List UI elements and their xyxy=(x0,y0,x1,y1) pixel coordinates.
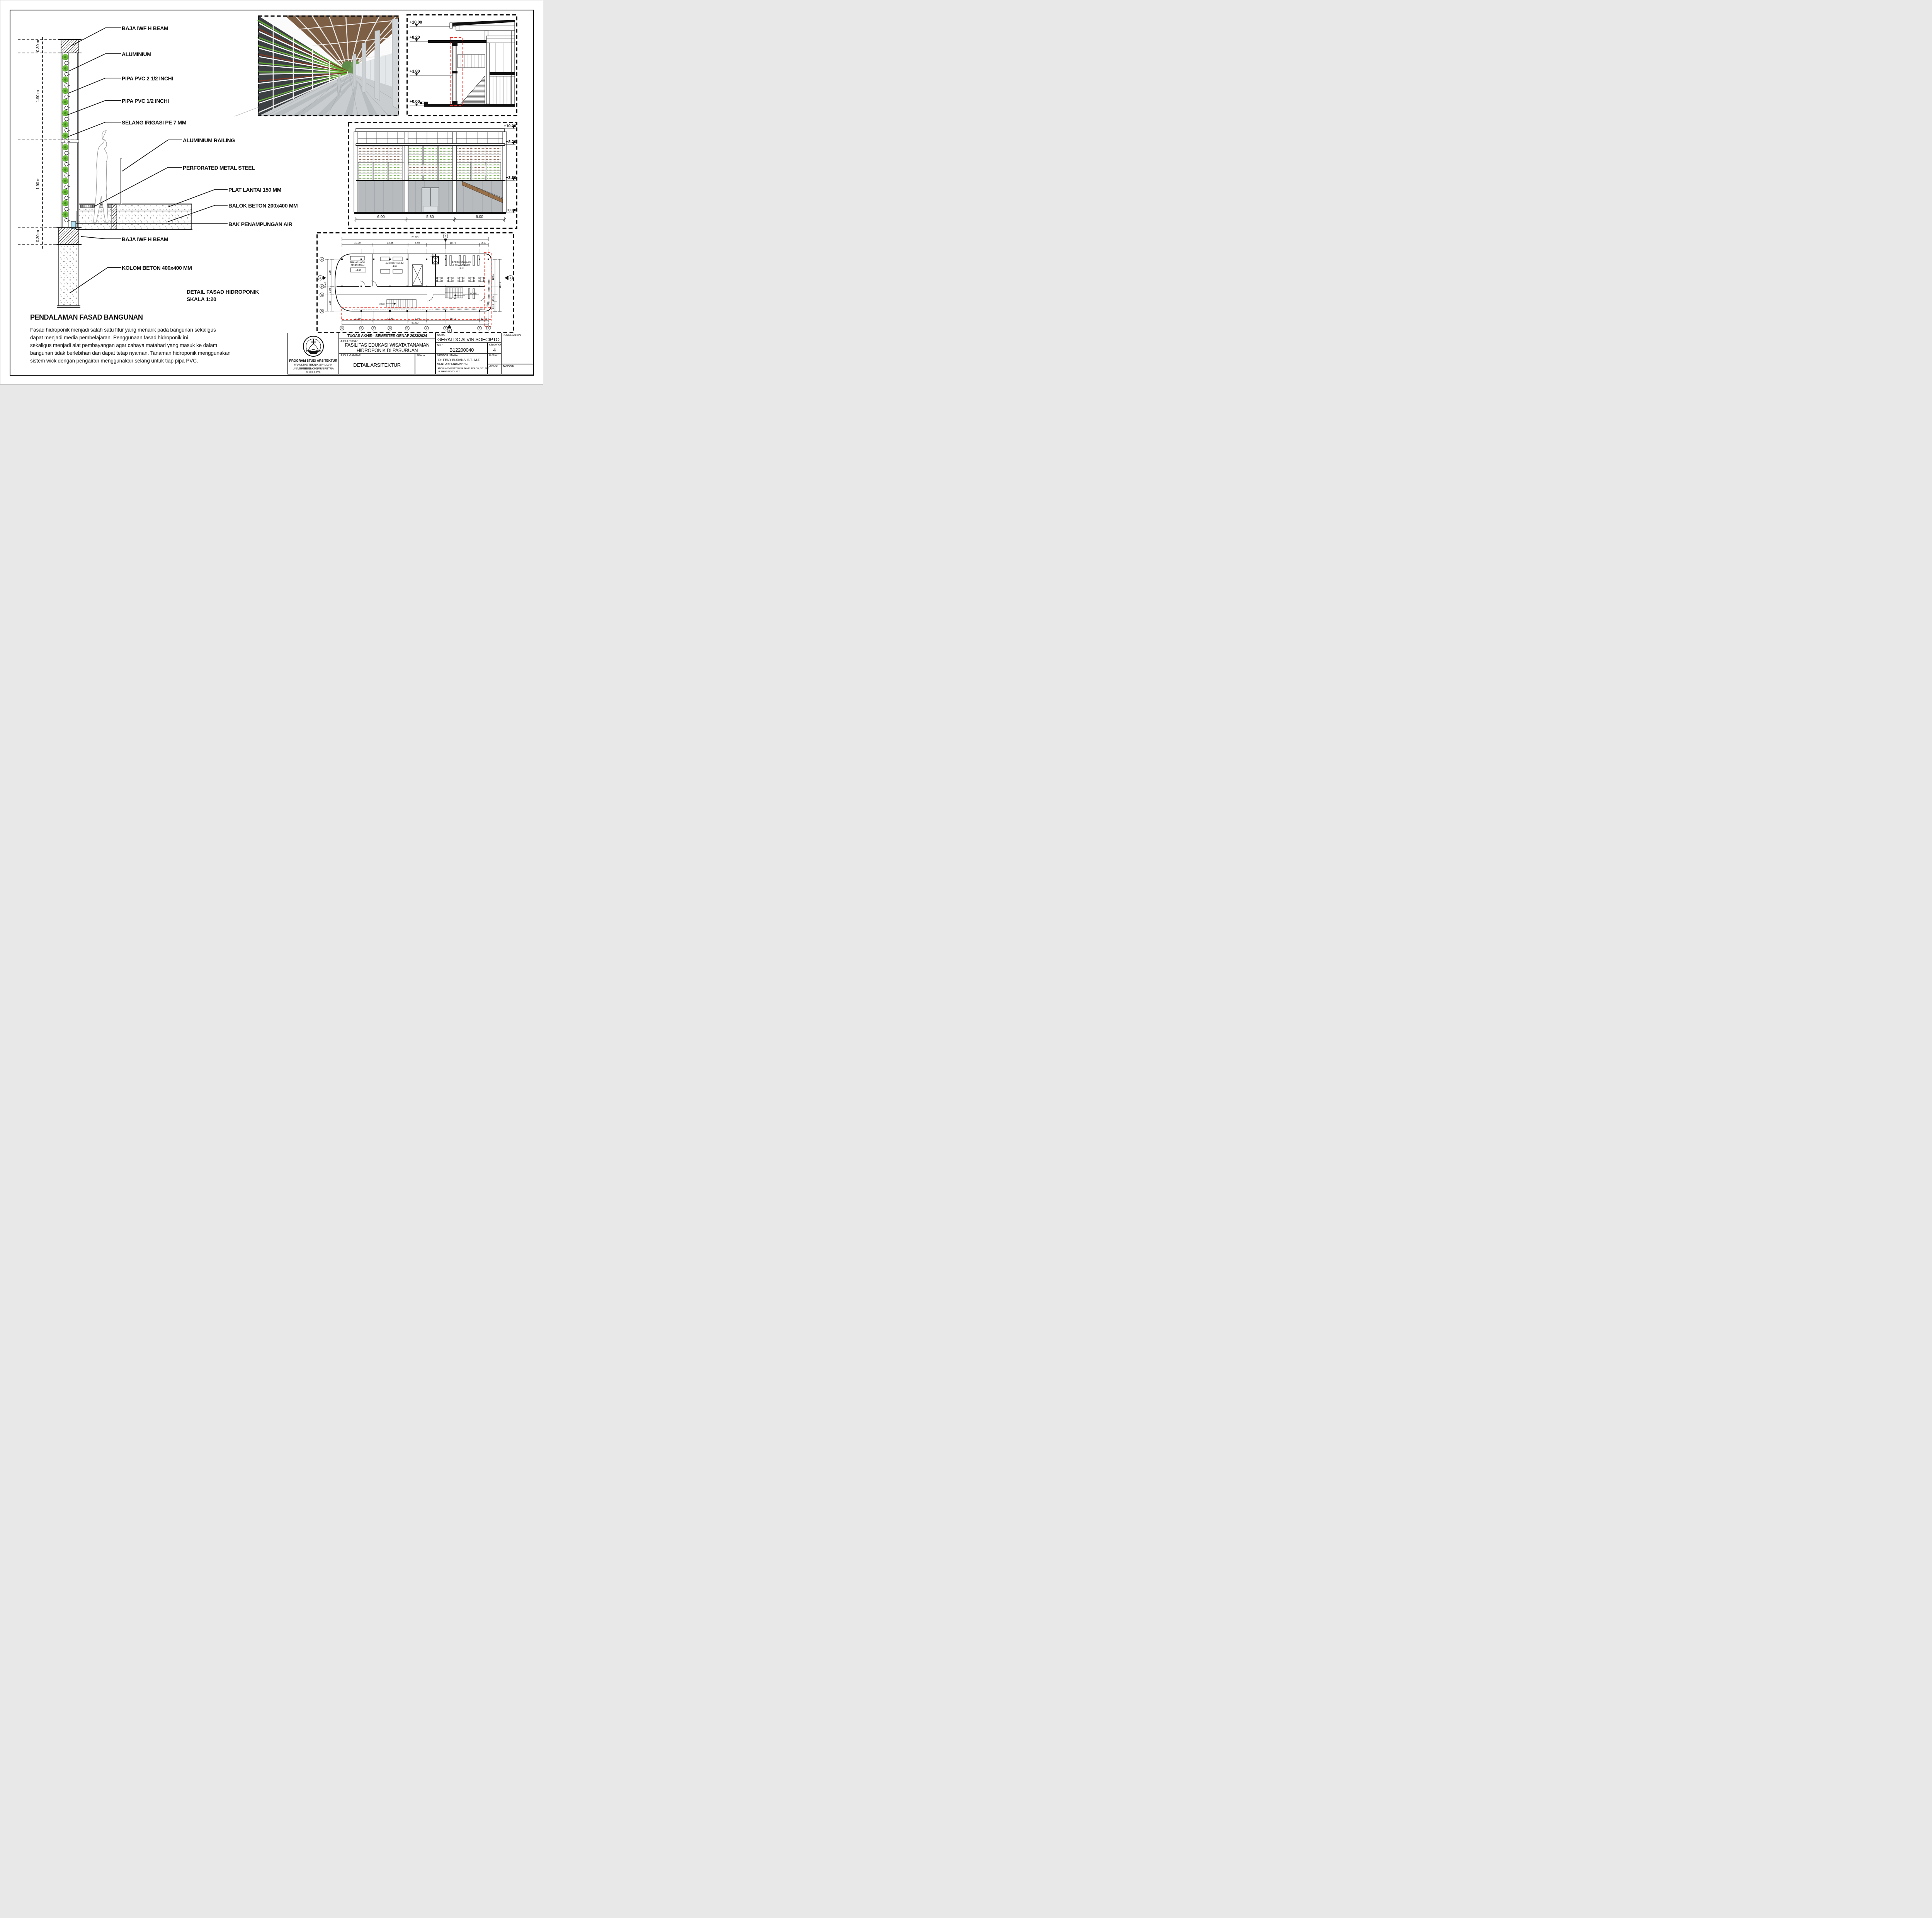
titleblock-mentor-cell: MENTOR UTAMA Dr. FENY ELSIANA, S.T., M.T… xyxy=(435,353,488,374)
page-heading: PENDALAMAN FASAD BANGUNAN xyxy=(30,313,143,322)
svg-text:2: 2 xyxy=(479,327,480,330)
svg-text:DOWN: DOWN xyxy=(379,303,386,306)
titleblock-nrp-cell: NRP B12200040 xyxy=(435,343,488,353)
titleblock-judul-tugas-cell: JUDUL TUGAS FASILITAS EDUKASI WISATA TAN… xyxy=(339,339,435,353)
sheet: BAJA IWF H BEAM ALUMINIUM PIPA PVC 2 1/2… xyxy=(0,0,543,385)
section-mark-a-right: A xyxy=(505,276,513,280)
svg-text:12.60: 12.60 xyxy=(492,274,495,280)
svg-text:B: B xyxy=(321,286,323,288)
detail-label: KOLOM BETON 400x400 MM xyxy=(122,265,192,271)
description-paragraph: Fasad hidroponik menjadi salah satu fitu… xyxy=(30,326,285,365)
detail-label: PLAT LANTAI 150 MM xyxy=(228,187,281,193)
grid-bubbles-rows: A B C D xyxy=(320,257,324,313)
svg-text:10.90: 10.90 xyxy=(354,242,361,245)
section-mark-a-left: A xyxy=(318,276,326,280)
svg-text:3.00: 3.00 xyxy=(329,288,332,293)
corridor-render xyxy=(258,15,399,116)
svg-text:LABORATORIUM: LABORATORIUM xyxy=(385,262,403,265)
svg-text:8: 8 xyxy=(361,327,362,330)
dim-label: 1.90 m xyxy=(36,90,40,102)
plan-stair-library xyxy=(445,288,465,298)
detail-label: BALOK BETON 200x400 MM xyxy=(228,203,298,209)
titleblock-judul-gambar-cell: JUDUL GAMBAR DETAIL ARSITEKTUR xyxy=(339,353,415,374)
detail-label: PIPA PVC 1/2 INCHI xyxy=(122,98,169,104)
titleblock-jumlah-cell: JUMLAH xyxy=(488,364,501,374)
svg-text:+8.20: +8.20 xyxy=(506,140,516,144)
titleblock-kelompok-cell: KELOMPOK 4 xyxy=(488,343,501,353)
svg-text:9: 9 xyxy=(341,327,343,330)
section-mark-b-top: B xyxy=(443,234,448,249)
detail-label: ALUMINIUM RAILING xyxy=(183,137,235,143)
svg-text:10.90: 10.90 xyxy=(354,318,361,320)
section-mark-b-bottom: B xyxy=(447,325,452,333)
titleblock-skala-cell: SKALA xyxy=(415,353,435,374)
svg-text:12.35: 12.35 xyxy=(387,242,394,245)
svg-text:B: B xyxy=(445,235,447,238)
section-drawing: +10.00 +8.20 +3.80 +0.00 xyxy=(406,14,517,116)
detail-title: DETAIL FASAD HIDROPONIKSKALA 1:20 xyxy=(187,288,259,303)
svg-text:6.00: 6.00 xyxy=(476,215,483,219)
svg-text:+10.00: +10.00 xyxy=(410,20,422,25)
svg-text:+4.65: +4.65 xyxy=(391,265,397,268)
leader-lines xyxy=(67,28,228,293)
svg-text:18.75: 18.75 xyxy=(450,242,456,245)
university-logo xyxy=(303,335,324,357)
svg-text:6: 6 xyxy=(389,327,391,330)
dim-label: 1.90 m xyxy=(36,178,40,190)
svg-text:+3.80: +3.80 xyxy=(410,69,420,74)
svg-text:PERPUSTAKAAN: PERPUSTAKAAN xyxy=(452,261,471,264)
svg-text:18.75: 18.75 xyxy=(450,318,456,320)
detail-label: PIPA PVC 2 1/2 INCHI xyxy=(122,75,173,82)
plan-stair-outdoor xyxy=(386,300,416,308)
svg-text:+3.80: +3.80 xyxy=(506,175,516,180)
floor-plan: 51.50 10.90 12.35 6.40 18.75 3.10 10.90 … xyxy=(316,232,514,333)
hydroponic-plants xyxy=(62,54,70,222)
titleblock-nama-cell: NAMA GERALDO ALVIN SOECIPTO xyxy=(435,333,501,343)
hydro-panels xyxy=(358,145,501,180)
svg-text:B: B xyxy=(449,330,451,332)
detail-label: BAJA IWF H BEAM xyxy=(122,236,168,242)
institution-line: UNIVERSITAS KRISTEN PETRA xyxy=(288,367,338,371)
institution-line: SURABAYA xyxy=(288,371,338,374)
svg-text:18.40: 18.40 xyxy=(324,282,327,288)
svg-text:3.10: 3.10 xyxy=(481,242,486,245)
svg-text:A: A xyxy=(510,277,512,280)
svg-text:A: A xyxy=(320,277,321,280)
detail-label: SELANG IRIGASI PE 7 MM xyxy=(122,119,186,126)
svg-text:4: 4 xyxy=(426,327,427,330)
svg-text:C: C xyxy=(321,294,323,297)
detail-label: BAK PENAMPUNGAN AIR xyxy=(228,221,292,227)
svg-text:PENELITIAN: PENELITIAN xyxy=(350,264,364,267)
svg-text:5.80: 5.80 xyxy=(426,215,434,219)
svg-text:+0.00: +0.00 xyxy=(410,99,420,104)
svg-text:+0.00: +0.00 xyxy=(506,208,516,213)
svg-text:3: 3 xyxy=(445,327,446,330)
titleblock-lembar-cell: LEMBAR xyxy=(488,353,501,364)
svg-text:51.50: 51.50 xyxy=(481,318,487,320)
svg-text:+4.65: +4.65 xyxy=(355,270,361,272)
titleblock-tanggal-cell: TANGGAL xyxy=(501,364,533,374)
detail-label: BAJA IWF H BEAM xyxy=(122,25,168,31)
titleblock-pengesahan-cell: PENGESAHAN xyxy=(501,333,533,364)
svg-text:18.40: 18.40 xyxy=(499,282,502,288)
dim-label: 0.30 m xyxy=(36,230,40,242)
svg-text:+4.65: +4.65 xyxy=(459,267,464,270)
svg-text:12.35: 12.35 xyxy=(387,318,394,320)
svg-text:6.40: 6.40 xyxy=(415,242,420,245)
svg-text:RUANG HASIL: RUANG HASIL xyxy=(349,261,366,264)
svg-text:51.50: 51.50 xyxy=(412,236,418,239)
svg-text:51.50: 51.50 xyxy=(412,322,418,325)
svg-text:2.40: 2.40 xyxy=(492,296,495,301)
grid-bubbles-cols: 9 8 7 6 5 4 3 2 1 xyxy=(340,326,490,330)
svg-text:5.80: 5.80 xyxy=(329,300,332,305)
svg-text:3.40: 3.40 xyxy=(492,304,495,309)
institution-line: PROGRAM STUDI ARSITEKTUR xyxy=(288,359,338,362)
detail-label: PERFORATED METAL STEEL xyxy=(183,165,255,171)
railing-bar xyxy=(121,158,122,204)
svg-text:1: 1 xyxy=(488,327,489,330)
title-block: PROGRAM STUDI ARSITEKTUR FAKULTAS TEKNIK… xyxy=(287,333,533,374)
svg-text:6.00: 6.00 xyxy=(377,215,385,219)
svg-text:+8.20: +8.20 xyxy=(410,35,420,40)
svg-text:+10.00: +10.00 xyxy=(504,124,517,128)
titleblock-header-cell: TUGAS AKHIR - SEMESTER GENAP 2023/2024 xyxy=(339,333,435,339)
svg-text:6.40: 6.40 xyxy=(415,318,420,320)
svg-text:A: A xyxy=(321,259,323,261)
elevation-drawing: +10.00 +8.20 +3.80 +0.00 6.00 5.80 6.00 xyxy=(348,122,517,229)
svg-text:9.60: 9.60 xyxy=(329,270,332,275)
svg-text:DOWN: DOWN xyxy=(470,293,477,295)
svg-text:7: 7 xyxy=(373,327,374,330)
titleblock-logo-cell: PROGRAM STUDI ARSITEKTUR FAKULTAS TEKNIK… xyxy=(287,333,339,374)
dim-label: 0.30 m xyxy=(36,40,40,52)
detail-label: ALUMINIUM xyxy=(122,51,151,57)
svg-text:5: 5 xyxy=(406,327,408,330)
svg-text:& RUANG BACA: & RUANG BACA xyxy=(452,264,471,267)
svg-text:D: D xyxy=(321,310,323,313)
svg-text:+4.65: +4.65 xyxy=(430,255,434,257)
